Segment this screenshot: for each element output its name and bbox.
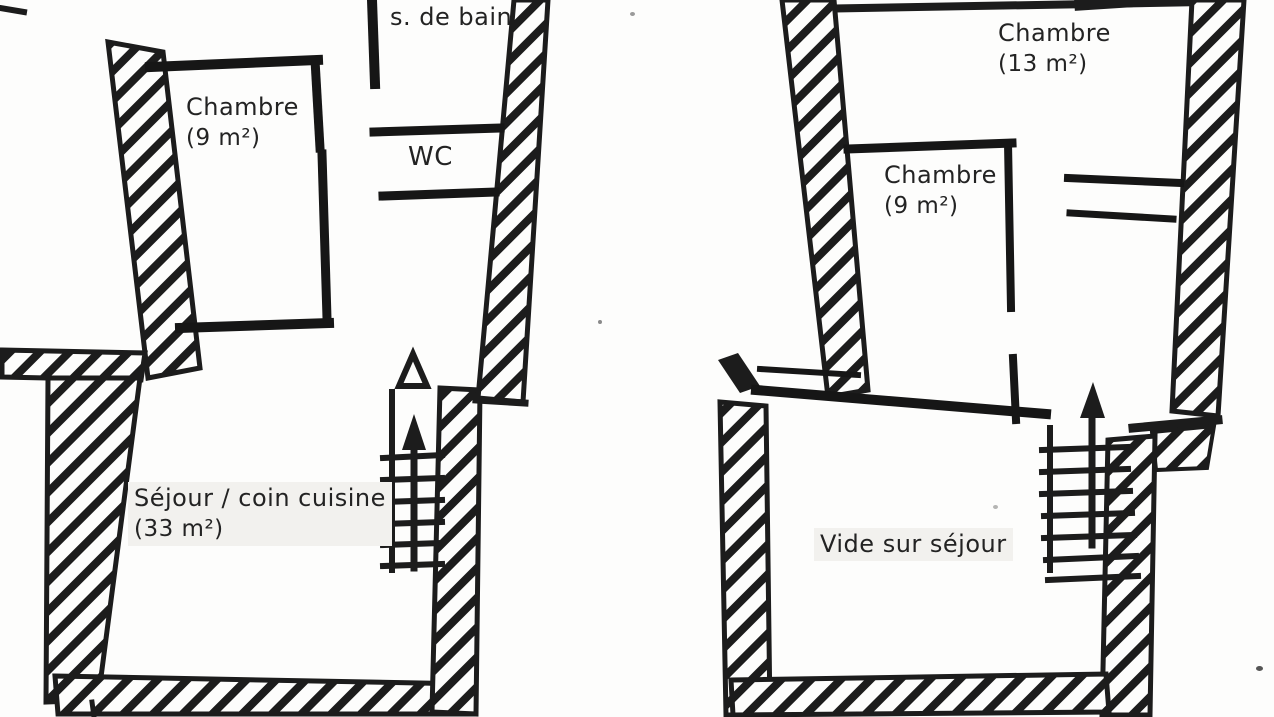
scan-speck bbox=[1256, 666, 1263, 671]
floorplan-page: s. de bain Chambre (9 m²) WC Séjour / co… bbox=[0, 0, 1274, 717]
room-label-salle-de-bain: s. de bain bbox=[390, 2, 512, 33]
direction-triangle bbox=[399, 354, 427, 386]
room-name: Chambre bbox=[884, 160, 997, 191]
divider-wall bbox=[756, 369, 1046, 414]
room-area: (9 m²) bbox=[884, 191, 997, 222]
wall-hatched bbox=[1172, 0, 1244, 416]
scan-mark bbox=[0, 8, 24, 12]
scan-speck bbox=[598, 320, 602, 324]
wall-hatched bbox=[432, 388, 480, 714]
wall-hatched bbox=[55, 676, 474, 714]
room-name: s. de bain bbox=[390, 2, 512, 33]
wall-hatched bbox=[731, 674, 1109, 715]
room-area: (33 m²) bbox=[134, 514, 386, 545]
wall-top-thick bbox=[1080, 2, 1127, 5]
room-name: Chambre bbox=[998, 18, 1111, 49]
scan-speck bbox=[630, 12, 635, 16]
room-label-wc: WC bbox=[408, 142, 453, 173]
scan-mark bbox=[92, 702, 94, 717]
room-name: WC bbox=[408, 142, 453, 173]
wall-cap bbox=[476, 400, 525, 403]
wall-hatched bbox=[1152, 426, 1214, 470]
wall-hatched bbox=[478, 0, 548, 402]
room-area: (9 m²) bbox=[186, 123, 299, 154]
wall-hatched bbox=[46, 378, 140, 702]
room-label-chambre-9-right: Chambre (9 m²) bbox=[884, 160, 997, 222]
right-plan bbox=[718, 0, 1244, 715]
room-name: Vide sur séjour bbox=[820, 529, 1007, 560]
room-label-vide-sur-sejour: Vide sur séjour bbox=[814, 528, 1013, 561]
doorway-lines bbox=[1068, 178, 1180, 219]
wall-hatched bbox=[782, 0, 868, 397]
room-name: Chambre bbox=[186, 92, 299, 123]
wall-top bbox=[805, 2, 1207, 9]
room-label-chambre-13: Chambre (13 m²) bbox=[998, 18, 1111, 80]
room-name: Séjour / coin cuisine bbox=[134, 483, 386, 514]
wall-hatched bbox=[720, 402, 770, 715]
room-label-chambre-left: Chambre (9 m²) bbox=[186, 92, 299, 154]
stairs-up-arrow bbox=[1080, 382, 1105, 545]
scan-speck bbox=[993, 505, 998, 509]
room-label-sejour: Séjour / coin cuisine (33 m²) bbox=[128, 482, 392, 546]
room-area: (13 m²) bbox=[998, 49, 1111, 80]
